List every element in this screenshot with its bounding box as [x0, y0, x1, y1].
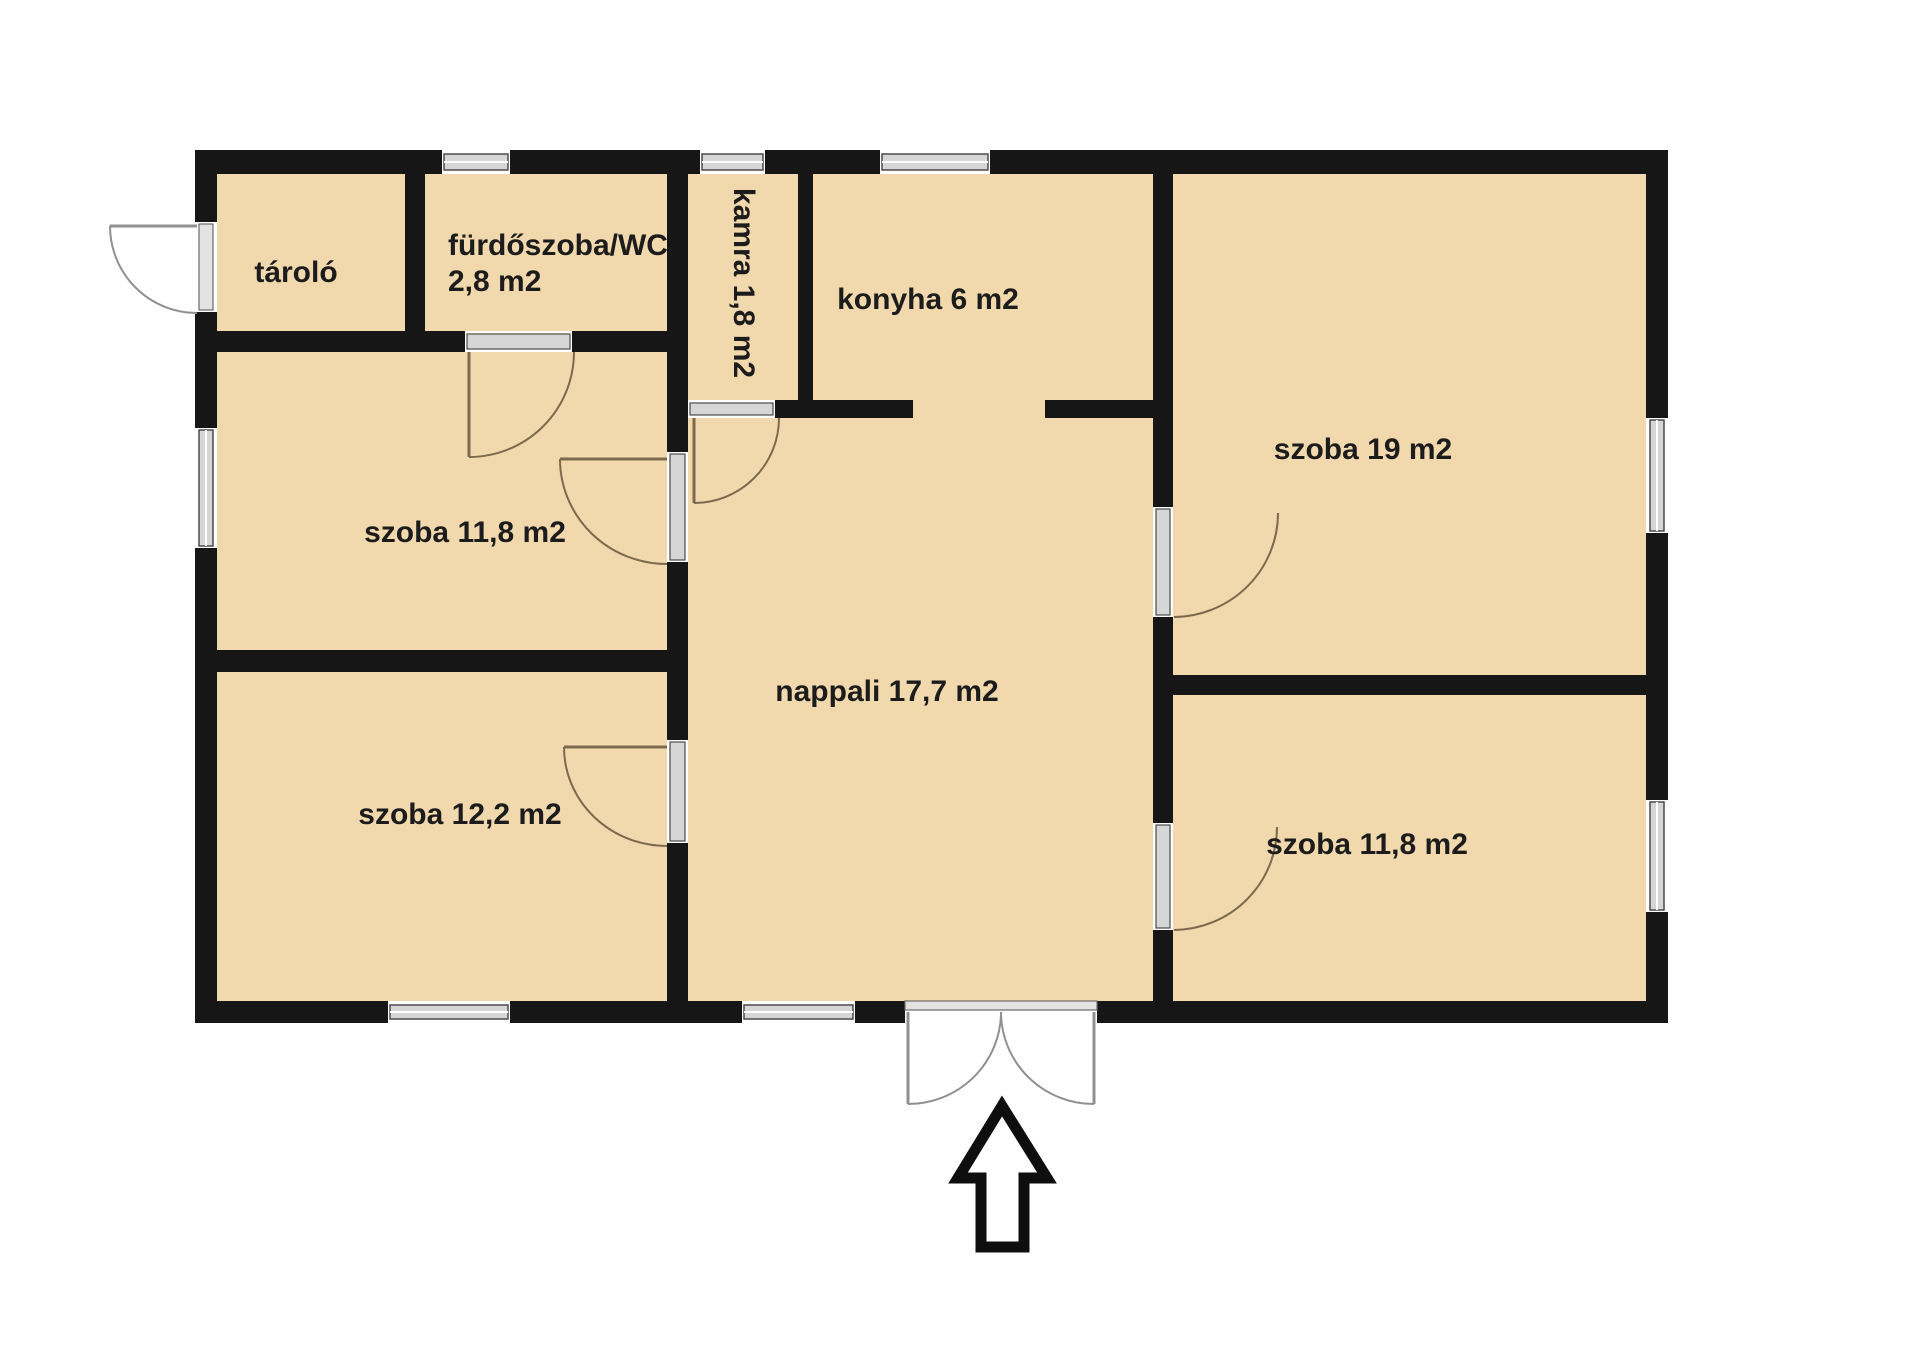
window-konyha-top-icon: [880, 150, 990, 174]
wall-szoba19-szoba118: [1173, 675, 1648, 695]
room-label-tarolo: tároló: [254, 256, 337, 289]
wall-under-bathroom: [217, 331, 688, 352]
window-kamra-top-icon: [700, 150, 765, 174]
floor-plan-page: tároló fürdőszoba/WC 2,8 m2 kamra 1,8 m2…: [0, 0, 1920, 1357]
window-bathroom-top-icon: [442, 150, 510, 174]
wall-tarolo-bathroom: [405, 172, 425, 331]
room-label-furdoszoba: fürdőszoba/WC: [448, 229, 668, 262]
room-label-szoba19: szoba 19 m2: [1274, 433, 1452, 466]
window-szoba118-left-icon: [195, 428, 217, 548]
entrance-arrow-icon: [958, 1106, 1047, 1247]
room-label-nappali: nappali 17,7 m2: [775, 675, 998, 708]
wall-kitchen-bottom-left: [775, 400, 913, 418]
room-label-kamra: kamra 1,8 m2: [727, 188, 760, 378]
window-szoba19-right-icon: [1646, 418, 1668, 533]
room-label-furdoszoba-area: 2,8 m2: [448, 265, 541, 298]
room-label-szoba122: szoba 12,2 m2: [358, 798, 561, 831]
wall-szoba118-szoba122: [217, 650, 667, 672]
window-szoba122-bottom-icon: [388, 1001, 510, 1023]
wall-spine-left: [667, 172, 688, 1003]
wall-kitchen-bottom-right: [1045, 400, 1153, 418]
door-tarolo-exterior-icon: [110, 222, 217, 313]
wall-kamra-konyha: [798, 172, 813, 418]
room-label-szoba118-right: szoba 11,8 m2: [1266, 828, 1468, 861]
door-entrance-double-icon: [905, 1001, 1097, 1104]
room-label-szoba118-left: szoba 11,8 m2: [364, 516, 566, 549]
room-label-konyha: konyha 6 m2: [837, 283, 1019, 316]
passage-konyha-nappali: [913, 400, 1045, 418]
window-szoba118-right-icon: [1646, 800, 1668, 912]
window-nappali-bottom-icon: [742, 1001, 855, 1023]
floor-plan: tároló fürdőszoba/WC 2,8 m2 kamra 1,8 m2…: [0, 0, 1920, 1357]
